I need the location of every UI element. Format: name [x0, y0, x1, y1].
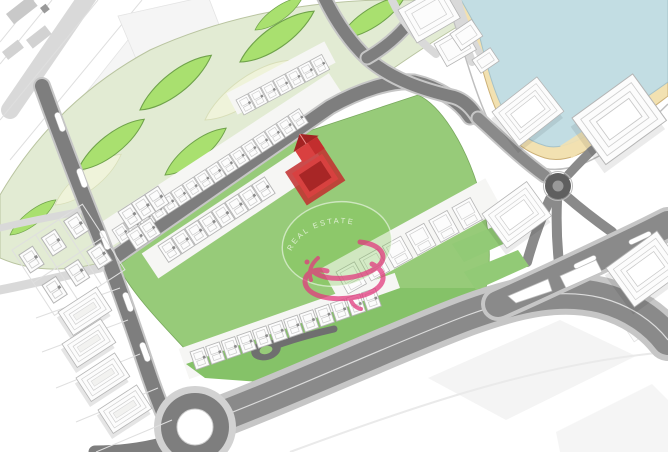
roundabout-small: [544, 172, 573, 201]
siteplan-image: REAL ESTATE: [0, 0, 668, 452]
siteplan-svg: REAL ESTATE: [0, 0, 668, 452]
